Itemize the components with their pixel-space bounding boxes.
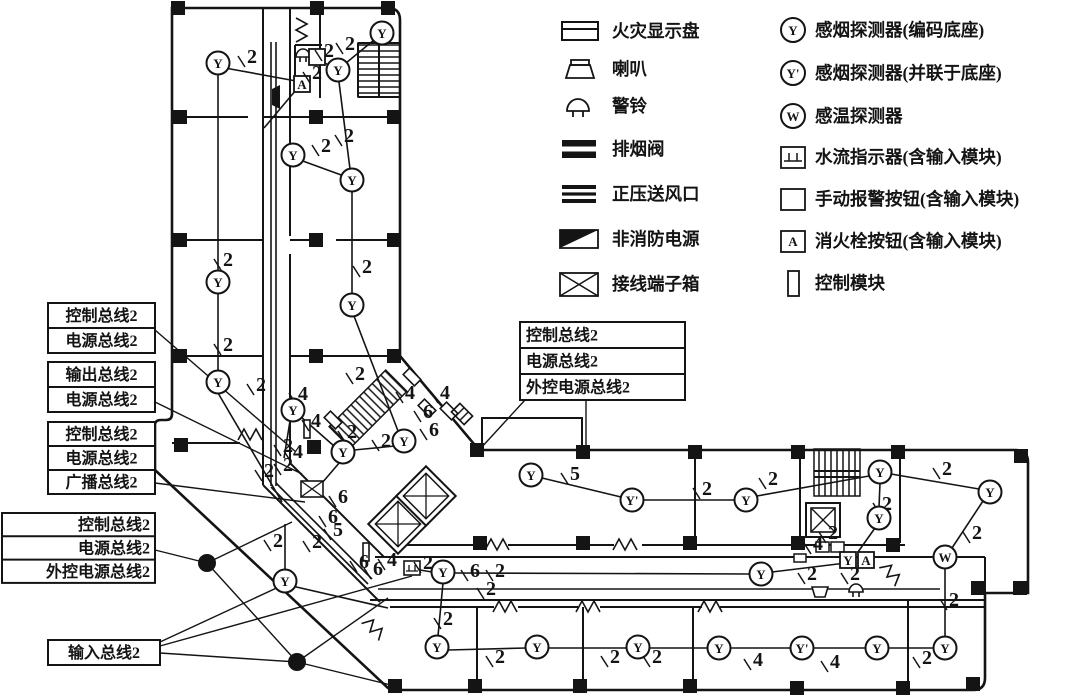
svg-text:Y: Y bbox=[213, 375, 223, 390]
conductor-tick bbox=[247, 384, 254, 395]
smoke-detector-icon: Y bbox=[627, 636, 650, 659]
column bbox=[173, 349, 187, 363]
svg-text:Y: Y bbox=[756, 567, 766, 582]
smoke-detector-icon: Y bbox=[341, 294, 364, 317]
svg-text:2: 2 bbox=[324, 40, 334, 62]
wire-count-label: 2 bbox=[247, 374, 266, 396]
smoke-detector-icon: Y bbox=[282, 144, 305, 167]
staircase-east bbox=[814, 449, 860, 496]
leader-line bbox=[160, 585, 283, 642]
svg-text:Y: Y bbox=[347, 298, 357, 313]
svg-text:2: 2 bbox=[264, 460, 274, 482]
svg-text:2: 2 bbox=[850, 563, 860, 585]
wire-count-label: 5 bbox=[561, 463, 580, 485]
wire bbox=[879, 483, 880, 507]
hydrant-button-icon: A bbox=[858, 552, 874, 568]
svg-text:消火栓按钮(含输入模块): 消火栓按钮(含输入模块) bbox=[815, 231, 1002, 251]
wire-count-label: 5 bbox=[324, 519, 343, 541]
column bbox=[387, 110, 401, 124]
svg-text:Y: Y bbox=[399, 434, 409, 449]
smoke-detector-icon: Y bbox=[526, 636, 549, 659]
bus-callout-box: 控制总线2电源总线2外控电源总线2 bbox=[2, 513, 155, 583]
wire-count-label: 2 bbox=[353, 256, 372, 278]
svg-text:外控电源总线2: 外控电源总线2 bbox=[525, 378, 630, 397]
column bbox=[309, 233, 323, 247]
svg-text:火灾显示盘: 火灾显示盘 bbox=[612, 21, 700, 41]
svg-text:2: 2 bbox=[486, 578, 496, 600]
svg-text:Y: Y bbox=[213, 275, 223, 290]
column bbox=[309, 110, 323, 124]
column bbox=[381, 1, 395, 15]
wire-count-label: 2 bbox=[963, 522, 982, 544]
bus-callout-box: 控制总线2电源总线2广播总线2 bbox=[48, 422, 155, 494]
speaker-icon bbox=[812, 587, 828, 597]
svg-text:Y: Y bbox=[532, 640, 542, 655]
svg-text:2: 2 bbox=[344, 125, 354, 147]
svg-text:4: 4 bbox=[753, 649, 763, 671]
svg-text:6: 6 bbox=[338, 486, 348, 508]
speaker-icon bbox=[272, 85, 280, 109]
svg-text:2: 2 bbox=[256, 374, 266, 396]
svg-text:喇叭: 喇叭 bbox=[612, 59, 647, 79]
svg-text:4: 4 bbox=[830, 651, 840, 673]
bus-callout-box: 输出总线2电源总线2 bbox=[48, 362, 155, 412]
svg-text:电源总线2: 电源总线2 bbox=[78, 538, 150, 557]
svg-text:Y: Y bbox=[338, 445, 348, 460]
svg-text:2: 2 bbox=[283, 454, 293, 476]
door-symbol bbox=[613, 539, 637, 550]
smoke-exhaust-valve-icon bbox=[794, 554, 806, 562]
wire-count-label: 2 bbox=[346, 363, 365, 385]
svg-text:输出总线2: 输出总线2 bbox=[65, 365, 137, 384]
heat-detector-icon: W bbox=[934, 546, 957, 569]
svg-text:2: 2 bbox=[223, 249, 233, 271]
conductor-tick bbox=[601, 656, 608, 667]
wire bbox=[891, 474, 979, 489]
svg-text:接线端子箱: 接线端子箱 bbox=[612, 274, 700, 294]
smoke-detector-icon: Y bbox=[332, 441, 355, 464]
conductor-tick bbox=[821, 661, 828, 672]
leader-line bbox=[297, 662, 395, 686]
conductor-tick bbox=[744, 659, 751, 670]
svg-text:4: 4 bbox=[311, 410, 321, 432]
svg-text:控制总线2: 控制总线2 bbox=[65, 425, 137, 444]
column bbox=[309, 349, 323, 363]
smoke-detector-parallel-icon: Y' bbox=[781, 61, 805, 85]
conductor-tick bbox=[274, 445, 281, 456]
terminal-box-icon bbox=[560, 273, 598, 296]
conductor-tick bbox=[798, 573, 805, 584]
non-fire-power-icon bbox=[560, 230, 598, 248]
legend: 火灾显示盘喇叭警铃排烟阀正压送风口非消防电源接线端子箱Y感烟探测器(编码底座)Y… bbox=[560, 18, 1019, 296]
smoke-detector-parallel-icon: Y' bbox=[621, 489, 644, 512]
svg-text:A: A bbox=[861, 553, 871, 568]
svg-text:2: 2 bbox=[922, 647, 932, 669]
conductor-tick bbox=[324, 529, 331, 540]
column bbox=[576, 445, 590, 459]
wire-count-label: 2 bbox=[255, 460, 274, 482]
junction-dot bbox=[288, 653, 306, 671]
svg-text:水流指示器(含输入模块): 水流指示器(含输入模块) bbox=[815, 147, 1002, 167]
door-symbol bbox=[576, 601, 600, 612]
svg-text:非消防电源: 非消防电源 bbox=[612, 229, 700, 249]
svg-text:Y': Y' bbox=[796, 641, 809, 656]
door-symbol bbox=[296, 18, 307, 42]
svg-text:正压送风口: 正压送风口 bbox=[612, 184, 700, 204]
column bbox=[573, 679, 587, 693]
svg-text:2: 2 bbox=[347, 421, 357, 443]
conductor-tick bbox=[461, 570, 468, 581]
svg-text:5: 5 bbox=[570, 463, 580, 485]
conductor-tick bbox=[319, 516, 326, 527]
svg-text:Y: Y bbox=[741, 493, 751, 508]
smoke-detector-parallel-icon: Y' bbox=[791, 637, 814, 660]
svg-text:2: 2 bbox=[362, 256, 372, 278]
svg-text:4: 4 bbox=[405, 382, 415, 404]
svg-text:Y': Y' bbox=[787, 66, 800, 81]
svg-text:Y: Y bbox=[985, 485, 995, 500]
conductor-tick bbox=[353, 266, 360, 277]
smoke-detector-icon: Y bbox=[432, 561, 455, 584]
staircase-north bbox=[358, 43, 400, 97]
conductor-tick bbox=[372, 440, 379, 451]
svg-text:2: 2 bbox=[355, 363, 365, 385]
column bbox=[470, 443, 484, 457]
smoke-detector-icon: Y bbox=[393, 430, 416, 453]
svg-text:A: A bbox=[788, 234, 798, 249]
smoke-detector-icon: Y bbox=[934, 637, 957, 660]
conductor-tick bbox=[486, 656, 493, 667]
svg-text:电源总线2: 电源总线2 bbox=[65, 390, 137, 409]
smoke-detector-icon: Y bbox=[520, 464, 543, 487]
conductor-tick bbox=[963, 532, 970, 543]
wire bbox=[225, 68, 296, 81]
column bbox=[310, 1, 324, 15]
wire-count-label: 2 bbox=[238, 46, 257, 68]
wire-count-label: 2 bbox=[335, 125, 354, 147]
wire-count-label: 2 bbox=[798, 563, 817, 585]
column bbox=[891, 445, 905, 459]
svg-text:2: 2 bbox=[807, 563, 817, 585]
smoke-detector-icon: Y bbox=[750, 563, 773, 586]
svg-text:广播总线2: 广播总线2 bbox=[65, 473, 137, 492]
svg-text:2: 2 bbox=[312, 531, 322, 553]
smoke-detector-icon: Y bbox=[341, 169, 364, 192]
svg-text:2: 2 bbox=[223, 334, 233, 356]
wire-count-label: 6 bbox=[461, 560, 480, 582]
fire-alarm-plan-page: AYA 222222222224424222244666652266426222… bbox=[0, 0, 1080, 700]
smoke-detector-icon: Y bbox=[207, 52, 230, 75]
svg-text:控制总线2: 控制总线2 bbox=[526, 326, 598, 345]
wire-count-label: 4 bbox=[744, 649, 763, 671]
smoke-detector-icon: Y bbox=[274, 570, 297, 593]
wire-count-label: 2 bbox=[274, 454, 293, 476]
column bbox=[576, 536, 590, 550]
column bbox=[307, 440, 321, 454]
svg-text:4: 4 bbox=[293, 441, 303, 463]
svg-text:排烟阀: 排烟阀 bbox=[612, 139, 665, 159]
bus-callout-box: 输入总线2 bbox=[48, 640, 160, 665]
svg-text:Y: Y bbox=[288, 403, 298, 418]
svg-text:电源总线2: 电源总线2 bbox=[65, 331, 137, 350]
wire-count-label: 2 bbox=[759, 468, 778, 490]
column bbox=[886, 538, 900, 552]
svg-text:Y: Y bbox=[377, 26, 387, 41]
column bbox=[791, 536, 805, 550]
door-symbol bbox=[493, 601, 517, 612]
svg-text:Y: Y bbox=[438, 565, 448, 580]
svg-text:控制模块: 控制模块 bbox=[815, 273, 885, 293]
svg-text:手动报警按钮(含输入模块): 手动报警按钮(含输入模块) bbox=[815, 189, 1019, 209]
wire-count-label: 2 bbox=[303, 531, 322, 553]
wire-count-label: 2 bbox=[312, 135, 331, 157]
svg-text:2: 2 bbox=[312, 62, 322, 84]
column bbox=[688, 445, 702, 459]
column bbox=[966, 677, 980, 691]
column bbox=[468, 679, 482, 693]
column bbox=[683, 679, 697, 693]
wire-count-label: 2 bbox=[933, 458, 952, 480]
wire bbox=[448, 648, 526, 650]
svg-text:Y: Y bbox=[288, 148, 298, 163]
heat-detector-icon: W bbox=[781, 104, 805, 128]
bus-callout-box: 控制总线2电源总线2 bbox=[48, 303, 155, 353]
column bbox=[791, 445, 805, 459]
svg-text:外控电源总线2: 外控电源总线2 bbox=[45, 562, 150, 581]
column bbox=[473, 536, 487, 550]
conductor-tick bbox=[312, 145, 319, 156]
svg-text:4: 4 bbox=[440, 382, 450, 404]
column bbox=[173, 110, 187, 124]
wire-count-label: 2 bbox=[214, 249, 233, 271]
svg-text:Y: Y bbox=[213, 56, 223, 71]
smoke-detector-icon: Y bbox=[282, 399, 305, 422]
svg-text:4: 4 bbox=[387, 549, 397, 571]
leader-line bbox=[480, 400, 525, 449]
svg-text:Y: Y bbox=[347, 173, 357, 188]
pressurized-air-outlet-icon bbox=[562, 185, 596, 203]
wire bbox=[218, 393, 282, 502]
svg-text:2: 2 bbox=[610, 646, 620, 668]
alarm-bell-icon bbox=[567, 99, 589, 117]
smoke-detector-icon: Y bbox=[371, 22, 394, 45]
wire bbox=[542, 478, 621, 497]
svg-text:W: W bbox=[939, 550, 952, 565]
svg-text:5: 5 bbox=[333, 519, 343, 541]
svg-text:6: 6 bbox=[373, 558, 383, 580]
svg-text:A: A bbox=[297, 77, 307, 92]
column bbox=[174, 438, 188, 452]
control-module-icon bbox=[788, 271, 799, 296]
smoke-detector-icon: Y bbox=[426, 636, 449, 659]
conductor-tick bbox=[346, 373, 353, 384]
svg-text:6: 6 bbox=[470, 560, 480, 582]
manual-alarm-button-icon bbox=[781, 189, 805, 210]
svg-text:Y: Y bbox=[432, 640, 442, 655]
svg-text:Y: Y bbox=[333, 63, 343, 78]
svg-text:2: 2 bbox=[972, 522, 982, 544]
conductor-tick bbox=[420, 429, 427, 440]
wire-count-label: 2 bbox=[336, 33, 355, 55]
conductor-tick bbox=[759, 478, 766, 489]
svg-text:2: 2 bbox=[768, 468, 778, 490]
door-symbol bbox=[698, 601, 722, 612]
column bbox=[387, 349, 401, 363]
wire bbox=[300, 160, 344, 176]
svg-text:2: 2 bbox=[702, 478, 712, 500]
terminal-box-icon bbox=[301, 481, 323, 497]
bus-callout-box: 控制总线2电源总线2外控电源总线2 bbox=[520, 322, 685, 400]
svg-text:6: 6 bbox=[359, 551, 369, 573]
svg-text:Y: Y bbox=[788, 23, 798, 38]
svg-text:2: 2 bbox=[381, 430, 391, 452]
svg-text:2: 2 bbox=[942, 458, 952, 480]
wire bbox=[322, 462, 340, 483]
svg-text:Y: Y bbox=[874, 511, 884, 526]
svg-text:6: 6 bbox=[429, 419, 439, 441]
column bbox=[1013, 581, 1027, 595]
smoke-detector-icon: Y bbox=[708, 637, 731, 660]
floor-plan-canvas: AYA 222222222224424222244666652266426222… bbox=[0, 0, 1080, 700]
column bbox=[971, 581, 985, 595]
conductor-tick bbox=[274, 464, 281, 475]
svg-text:电源总线2: 电源总线2 bbox=[526, 352, 598, 371]
svg-text:2: 2 bbox=[345, 33, 355, 55]
svg-text:Y': Y' bbox=[626, 493, 639, 508]
wire-count-label: 2 bbox=[214, 334, 233, 356]
smoke-detector-icon: Y bbox=[979, 481, 1002, 504]
svg-text:感温探测器: 感温探测器 bbox=[815, 106, 903, 126]
conductor-tick bbox=[913, 657, 920, 668]
svg-text:Y: Y bbox=[940, 641, 950, 656]
svg-text:Y: Y bbox=[633, 640, 643, 655]
smoke-detector-icon: Y bbox=[207, 271, 230, 294]
wire-count-label: 4 bbox=[821, 651, 840, 673]
wire bbox=[858, 528, 875, 552]
hydrant-button-icon: A bbox=[781, 231, 805, 252]
speaker-icon bbox=[566, 60, 594, 78]
column bbox=[896, 681, 910, 695]
leader-line bbox=[160, 653, 297, 662]
column bbox=[387, 233, 401, 247]
smoke-detector-icon: Y bbox=[866, 637, 889, 660]
smoke-detector-icon: Y bbox=[207, 371, 230, 394]
wire-count-label: 4 bbox=[431, 382, 450, 404]
svg-text:2: 2 bbox=[495, 646, 505, 668]
alarm-bell-icon bbox=[849, 584, 863, 597]
svg-text:W: W bbox=[787, 109, 800, 124]
svg-text:Y: Y bbox=[875, 465, 885, 480]
conductor-tick bbox=[414, 411, 421, 422]
conductor-tick bbox=[336, 43, 343, 54]
svg-text:控制总线2: 控制总线2 bbox=[78, 515, 150, 534]
door-symbol bbox=[485, 539, 509, 550]
smoke-detector-icon: Y bbox=[868, 507, 891, 530]
alarm-bell-icon bbox=[296, 49, 310, 62]
svg-text:Y: Y bbox=[714, 641, 724, 656]
svg-text:控制总线2: 控制总线2 bbox=[65, 306, 137, 325]
fire-display-panel-icon bbox=[562, 22, 598, 40]
smoke-exhaust-valve-icon bbox=[324, 411, 342, 429]
water-flow-indicator-icon bbox=[781, 147, 805, 168]
svg-text:Y: Y bbox=[280, 574, 290, 589]
svg-text:输入总线2: 输入总线2 bbox=[68, 643, 140, 662]
column bbox=[1014, 449, 1028, 463]
door-symbol bbox=[362, 616, 387, 641]
column bbox=[683, 536, 697, 550]
svg-text:2: 2 bbox=[495, 560, 505, 582]
smoke-detector-icon: Y bbox=[869, 461, 892, 484]
column bbox=[171, 1, 185, 15]
column bbox=[388, 679, 402, 693]
svg-text:2: 2 bbox=[321, 135, 331, 157]
conductor-tick bbox=[303, 541, 310, 552]
wire-count-label: 2 bbox=[264, 530, 283, 552]
svg-text:2: 2 bbox=[828, 522, 838, 544]
wire-count-label: 2 bbox=[434, 608, 453, 630]
svg-text:Y: Y bbox=[872, 641, 882, 656]
svg-text:感烟探测器(并联于底座): 感烟探测器(并联于底座) bbox=[815, 63, 1002, 83]
svg-text:2: 2 bbox=[273, 530, 283, 552]
conductor-tick bbox=[335, 135, 342, 146]
svg-text:警铃: 警铃 bbox=[611, 96, 647, 116]
smoke-detector-icon: Y bbox=[735, 489, 758, 512]
junction-dot bbox=[198, 554, 216, 572]
door-symbol bbox=[879, 561, 903, 586]
svg-text:电源总线2: 电源总线2 bbox=[65, 449, 137, 468]
smoke-detector-icon: Y bbox=[327, 59, 350, 82]
conductor-tick bbox=[238, 56, 245, 67]
svg-text:Y: Y bbox=[526, 468, 536, 483]
svg-text:感烟探测器(编码底座): 感烟探测器(编码底座) bbox=[815, 20, 984, 40]
wire-count-label: 2 bbox=[601, 646, 620, 668]
conductor-tick bbox=[264, 540, 271, 551]
svg-text:2: 2 bbox=[652, 646, 662, 668]
svg-text:2: 2 bbox=[443, 608, 453, 630]
svg-text:2: 2 bbox=[247, 46, 257, 68]
smoke-detector-icon: Y bbox=[781, 18, 805, 42]
conductor-tick bbox=[255, 470, 262, 481]
conductor-tick bbox=[841, 573, 848, 584]
smoke-exhaust-valve-icon bbox=[562, 140, 596, 158]
wire-count-label: 2 bbox=[913, 647, 932, 669]
column bbox=[790, 681, 804, 695]
column bbox=[173, 233, 187, 247]
svg-text:2: 2 bbox=[949, 589, 959, 611]
conductor-tick bbox=[933, 468, 940, 479]
